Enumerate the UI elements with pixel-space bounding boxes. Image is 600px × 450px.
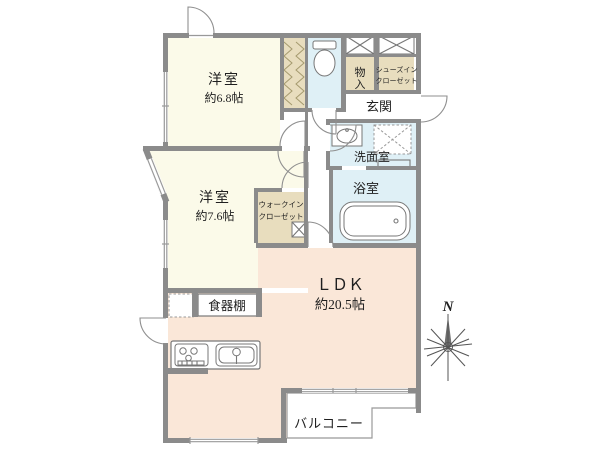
compass-needle <box>445 316 452 350</box>
window-ldk-bottom <box>190 437 258 444</box>
ldk-area-mid <box>258 248 310 288</box>
toilet-fixture <box>313 41 336 76</box>
door-arc-top-entry <box>188 7 214 33</box>
shoe-closet-label-1: シューズイン <box>376 65 418 74</box>
balcony-label: バルコニー <box>294 416 364 431</box>
cupboard-label: 食器棚 <box>208 298 246 313</box>
door-arc-bedroom1 <box>280 121 305 146</box>
kitchen-counter <box>171 341 260 369</box>
washroom-label: 洗面室 <box>354 149 390 164</box>
ldk-label: ＬＤＫ <box>316 277 364 294</box>
door-arc-front-entry <box>421 96 447 122</box>
compass-north-label: N <box>442 299 455 315</box>
floorplan: 洋室 約6.8帖 洋室 約7.6帖 ＬＤＫ 約20.5帖 玄関 洗面室 浴室 物… <box>0 0 600 450</box>
kitchen-sink <box>216 344 257 366</box>
window-bedroom2-left <box>162 220 169 268</box>
entrance-label: 玄関 <box>366 99 392 114</box>
ldk-area-bottom <box>167 393 287 438</box>
ldk-size: 約20.5帖 <box>315 297 366 312</box>
shoe-closet-label-2: クローゼット <box>376 76 418 85</box>
floorplan-canvas: 洋室 約6.8帖 洋室 約7.6帖 ＬＤＫ 約20.5帖 玄関 洗面室 浴室 物… <box>0 0 600 450</box>
bedroom2-label: 洋室 <box>199 189 231 206</box>
storage-label-2: 入 <box>355 79 366 91</box>
fridge-space <box>169 294 193 317</box>
storage-label-1: 物 <box>355 65 366 79</box>
compass-rose: N <box>424 299 472 381</box>
bedroom1-label: 洋室 <box>208 71 240 88</box>
ldk-area-right <box>308 248 416 388</box>
window-balcony-sliding <box>302 388 408 393</box>
bathtub <box>340 202 410 240</box>
stove <box>175 344 208 366</box>
bedroom1-size: 約6.8帖 <box>204 90 243 105</box>
bathroom-label: 浴室 <box>353 181 379 196</box>
wic-label-2: クローゼット <box>259 211 304 221</box>
wic-label-1: ウォークイン <box>259 200 304 209</box>
wic-box <box>292 222 306 237</box>
door-arc-ldk-side <box>140 318 166 344</box>
shoe-closet-room <box>379 57 414 92</box>
bedroom2-size: 約7.6帖 <box>195 208 234 223</box>
storage-x-boxes <box>346 36 414 54</box>
window-bedroom1-left <box>162 72 169 142</box>
